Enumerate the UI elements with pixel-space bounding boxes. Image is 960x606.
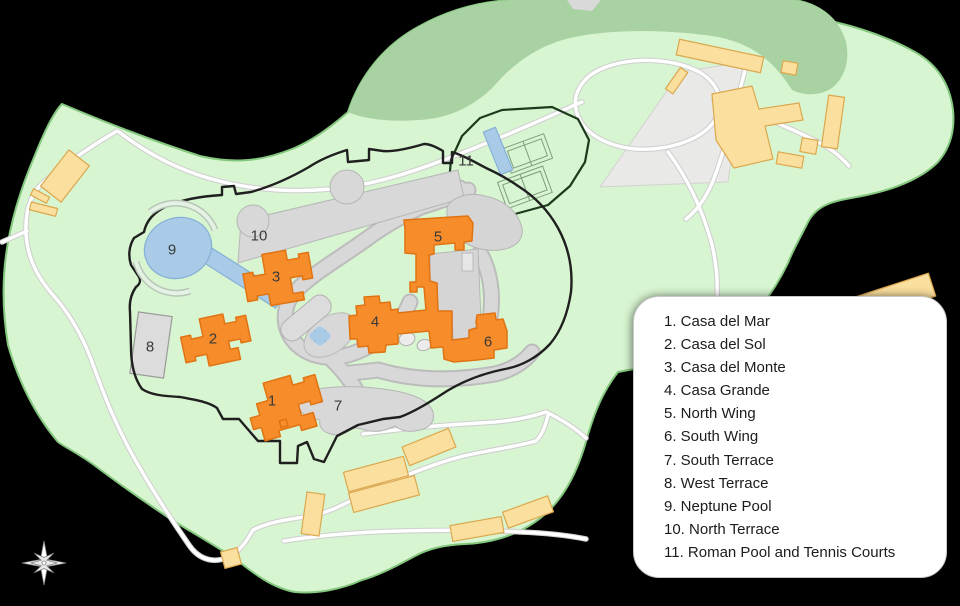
legend-item-3: 3. Casa del Monte [664, 356, 936, 379]
courtyard-building [462, 253, 473, 271]
legend-item-4: 4. Casa Grande [664, 379, 936, 402]
legend-item-8: 8. West Terrace [664, 472, 936, 495]
legend-item-7: 7. South Terrace [664, 449, 936, 472]
legend-item-1: 1. Casa del Mar [664, 310, 936, 333]
small-orange-structure [279, 419, 288, 428]
legend-item-2: 2. Casa del Sol [664, 333, 936, 356]
site-map: 1234567891011 1. Casa del Mar2. Casa del… [0, 0, 960, 606]
legend-list: 1. Casa del Mar2. Casa del Sol3. Casa de… [664, 310, 936, 564]
legend-item-11: 11. Roman Pool and Tennis Courts [664, 541, 936, 564]
legend-item-9: 9. Neptune Pool [664, 495, 936, 518]
legend-box: 1. Casa del Mar2. Casa del Sol3. Casa de… [633, 296, 947, 578]
legend-item-6: 6. South Wing [664, 425, 936, 448]
legend-item-10: 10. North Terrace [664, 518, 936, 541]
legend-item-5: 5. North Wing [664, 402, 936, 425]
compass-rose-icon [22, 541, 66, 585]
